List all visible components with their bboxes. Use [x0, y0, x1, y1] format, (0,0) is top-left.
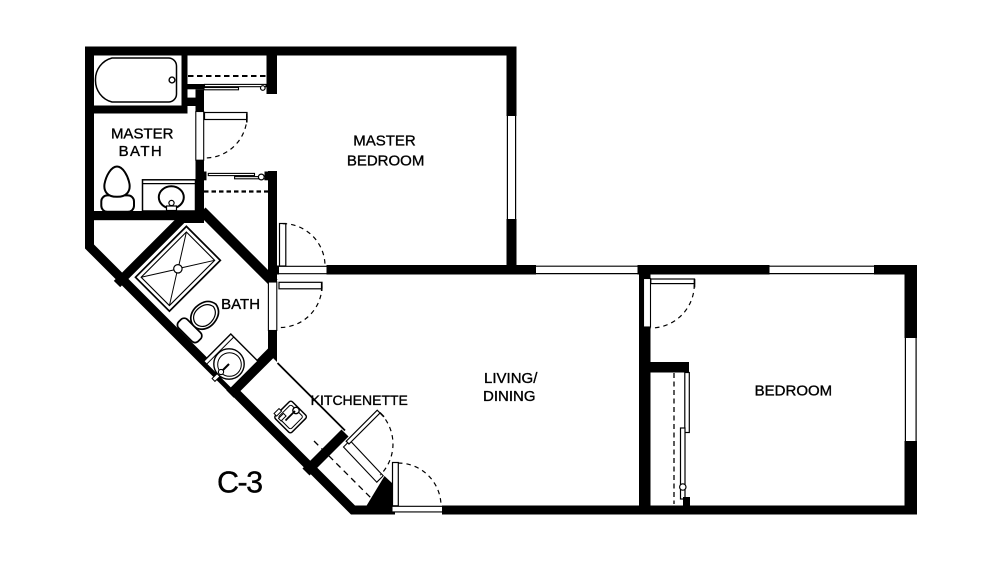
svg-text:BATH: BATH — [221, 296, 260, 313]
svg-text:KITCHENETTE: KITCHENETTE — [311, 392, 408, 408]
svg-text:MASTER: MASTER — [353, 133, 416, 150]
svg-text:MASTER: MASTER — [111, 126, 174, 143]
svg-text:LIVING/: LIVING/ — [484, 370, 538, 387]
svg-text:BEDROOM: BEDROOM — [347, 153, 425, 170]
svg-text:DINING: DINING — [483, 388, 536, 405]
svg-text:C-3: C-3 — [217, 466, 262, 500]
svg-text:BEDROOM: BEDROOM — [755, 383, 833, 400]
svg-text:BATH: BATH — [119, 143, 164, 160]
